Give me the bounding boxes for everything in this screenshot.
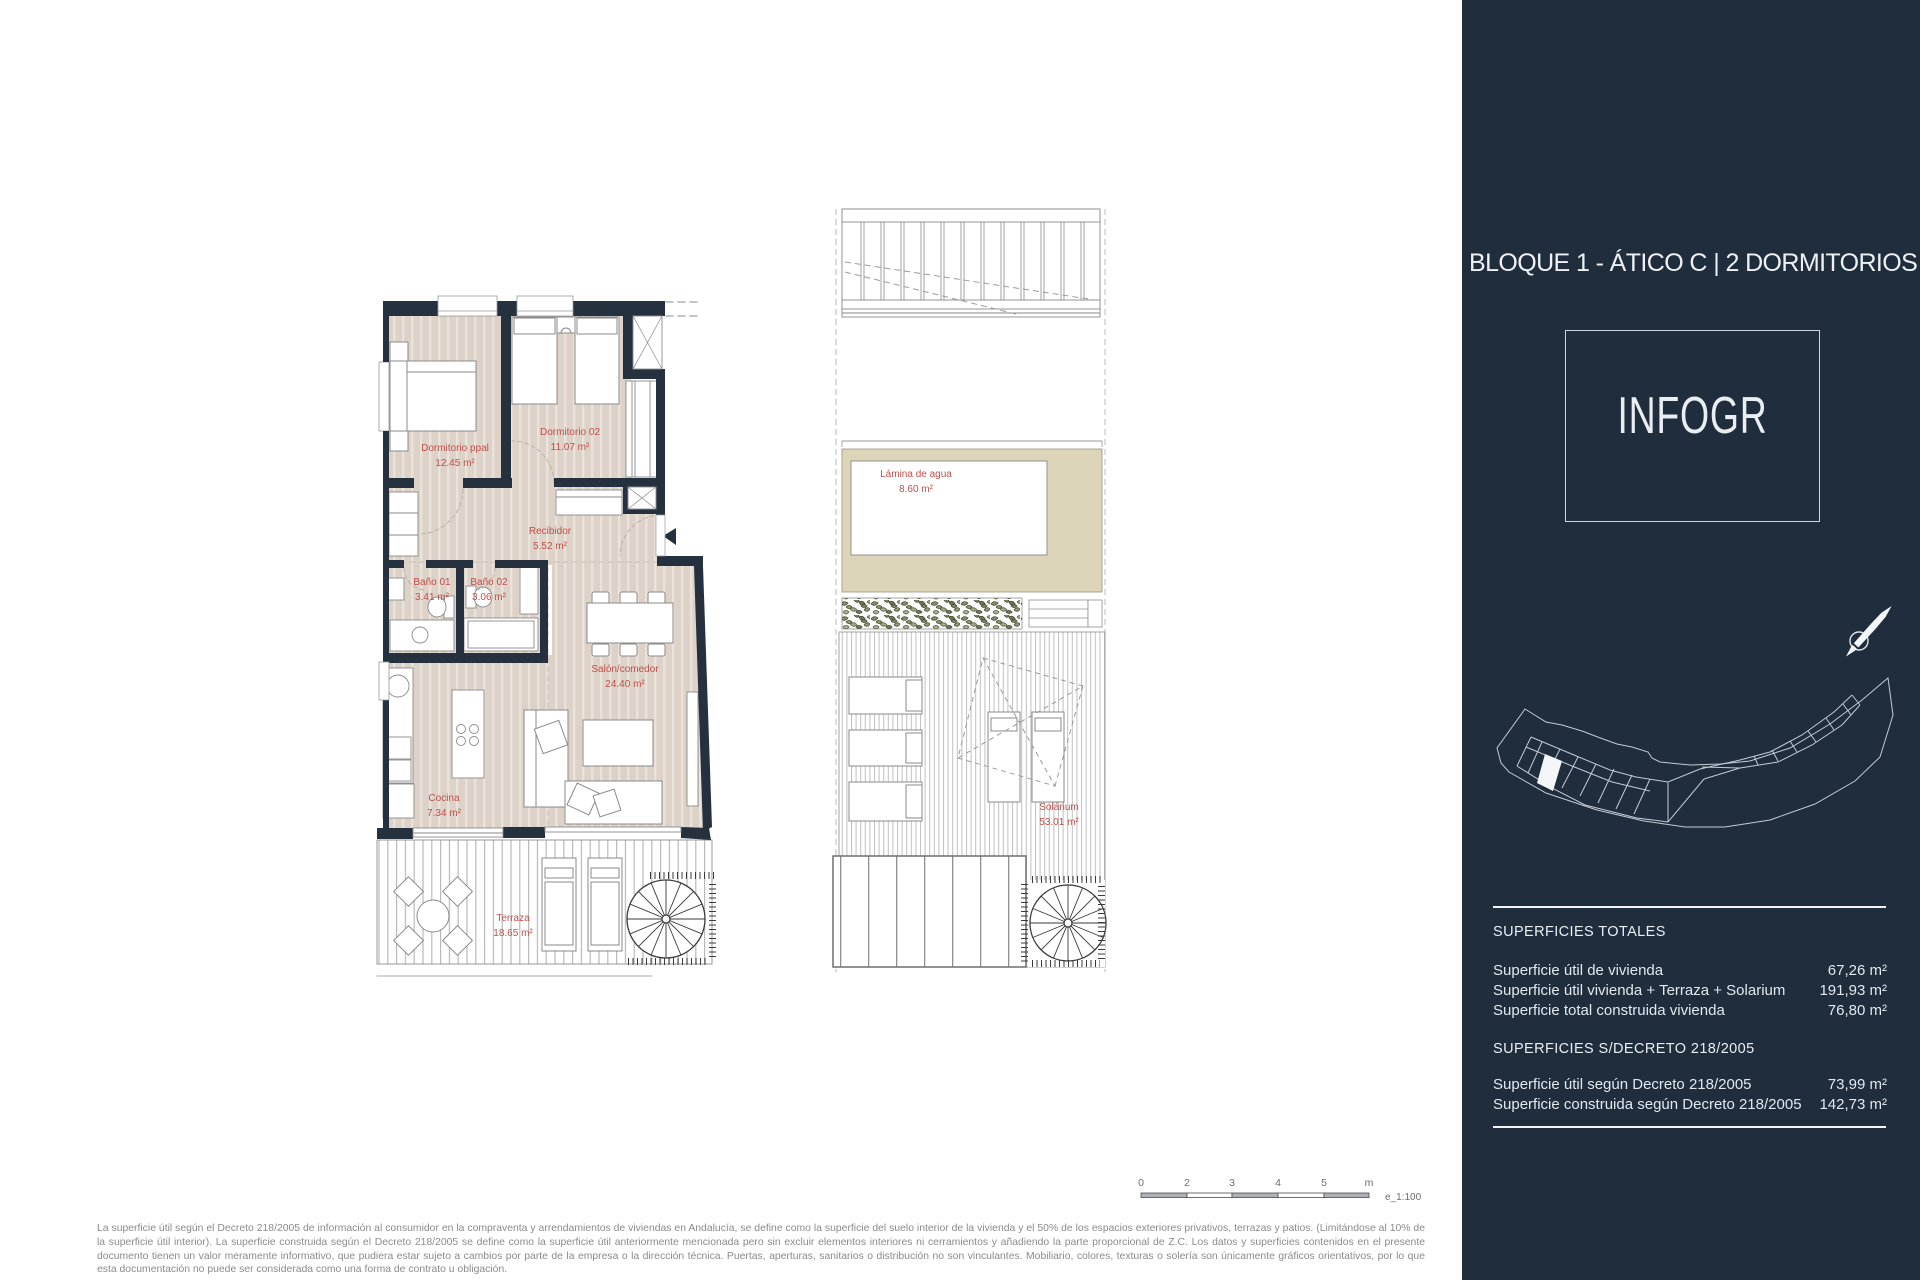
svg-text:18.65 m²: 18.65 m² (493, 928, 533, 939)
svg-text:Solárium: Solárium (1039, 802, 1078, 813)
svg-text:3.41 m²: 3.41 m² (415, 592, 450, 603)
svg-text:Terraza: Terraza (496, 913, 530, 924)
svg-text:5: 5 (1321, 1177, 1327, 1189)
svg-text:Salón/comedor: Salón/comedor (591, 664, 659, 675)
svg-text:12.45 m²: 12.45 m² (435, 458, 475, 469)
svg-text:Baño 02: Baño 02 (470, 577, 508, 588)
svg-text:0: 0 (1138, 1177, 1144, 1189)
svg-text:m: m (1365, 1177, 1374, 1189)
svg-text:Cocina: Cocina (428, 793, 460, 804)
svg-text:3: 3 (1229, 1177, 1235, 1189)
svg-text:8.60 m²: 8.60 m² (899, 484, 934, 495)
svg-text:Baño 01: Baño 01 (413, 577, 451, 588)
svg-text:Dormitorio 02: Dormitorio 02 (540, 427, 600, 438)
svg-text:2: 2 (1184, 1177, 1190, 1189)
svg-text:3.06 m²: 3.06 m² (472, 592, 507, 603)
svg-text:Lámina de agua: Lámina de agua (880, 469, 952, 480)
svg-text:7.34 m²: 7.34 m² (427, 808, 462, 819)
svg-text:Recibidor: Recibidor (529, 526, 572, 537)
svg-text:e_1:100: e_1:100 (1385, 1192, 1422, 1203)
svg-text:5.52 m²: 5.52 m² (533, 541, 568, 552)
svg-text:Dormitorio ppal: Dormitorio ppal (421, 443, 489, 454)
svg-text:53.01 m²: 53.01 m² (1039, 817, 1079, 828)
svg-text:24.40 m²: 24.40 m² (605, 679, 645, 690)
svg-text:11.07 m²: 11.07 m² (551, 442, 590, 453)
svg-text:4: 4 (1275, 1177, 1281, 1189)
